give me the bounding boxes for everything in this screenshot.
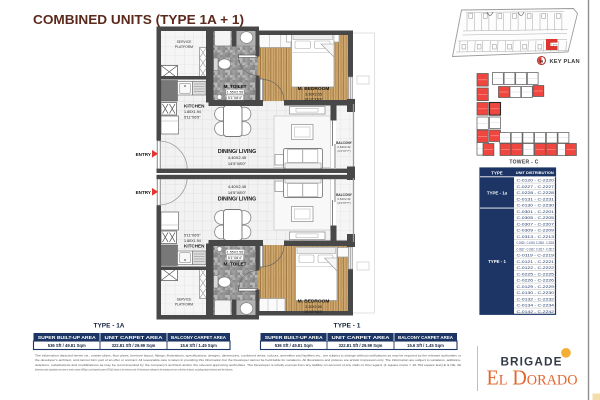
- svg-text:C-0226 - C-2226: C-0226 - C-2226: [517, 279, 555, 283]
- svg-text:536 Sft / 49.81 Sqm: 536 Sft / 49.81 Sqm: [48, 343, 86, 348]
- svg-text:1.55X2.55: 1.55X2.55: [227, 251, 243, 255]
- svg-text:UNIT DISTRIBUTION: UNIT DISTRIBUTION: [516, 170, 554, 175]
- svg-text:PLATFORM: PLATFORM: [175, 45, 193, 49]
- svg-text:UNIT CARPET AREA: UNIT CARPET AREA: [332, 335, 390, 340]
- svg-text:TYPE - 1a: TYPE - 1a: [487, 190, 508, 195]
- svg-text:C-0315 - C-1915, C-2015 - C-22: C-0315 - C-1915, C-2015 - C-2215: [517, 241, 555, 245]
- svg-text:TYPE - 1: TYPE - 1: [334, 323, 361, 330]
- svg-text:M. BEDROOM: M. BEDROOM: [298, 299, 330, 305]
- svg-text:C-0120 - C-2220: C-0120 - C-2220: [517, 179, 555, 183]
- svg-text:C-0122 - C-2222: C-0122 - C-2222: [517, 266, 555, 270]
- svg-text:C-0227 - C-2227: C-0227 - C-2227: [517, 185, 555, 189]
- svg-text:5'11"X6'5": 5'11"X6'5": [184, 234, 201, 238]
- svg-text:N: N: [540, 58, 543, 63]
- svg-text:C-0142 - C-2242: C-0142 - C-2242: [517, 310, 555, 314]
- svg-text:TYPE - 1A: TYPE - 1A: [94, 323, 125, 330]
- svg-text:(2'1"X7'7"): (2'1"X7'7"): [337, 149, 350, 153]
- svg-text:C-0134 - C-2234: C-0134 - C-2234: [517, 304, 555, 308]
- svg-text:14'5"X8'0": 14'5"X8'0": [228, 161, 247, 166]
- svg-text:TOWER - C: TOWER - C: [509, 160, 538, 166]
- svg-text:1.80X1.94: 1.80X1.94: [184, 110, 201, 114]
- svg-text:PLATFORM: PLATFORM: [175, 303, 193, 307]
- svg-text:3.30X2.55: 3.30X2.55: [305, 305, 322, 309]
- svg-text:KEY PLAN: KEY PLAN: [550, 59, 580, 65]
- svg-text:C-0309 - C-2209: C-0309 - C-2209: [517, 229, 555, 233]
- svg-text:5'1"X8'4": 5'1"X8'4": [228, 96, 243, 100]
- svg-text:C-0130 - C-2230: C-0130 - C-2230: [517, 291, 555, 295]
- svg-text:the developer's architect, and: the developer's architect, and cannot fo…: [35, 358, 461, 362]
- svg-text:The information depicted herei: The information depicted herein viz., ma…: [35, 354, 461, 358]
- svg-text:M. TOILET: M. TOILET: [223, 262, 246, 267]
- svg-text:DINING/ LIVING: DINING/ LIVING: [218, 197, 256, 203]
- svg-text:15.6 Sft / 1.45 Sqm: 15.6 Sft / 1.45 Sqm: [407, 343, 444, 348]
- svg-text:C-0130 - C-2230: C-0130 - C-2230: [517, 204, 555, 208]
- svg-text:15.6 Sft / 1.45 Sqm: 15.6 Sft / 1.45 Sqm: [180, 343, 217, 348]
- svg-text:(2'1"X7'7"): (2'1"X7'7"): [337, 201, 350, 205]
- svg-text:ENTRY: ENTRY: [136, 152, 151, 157]
- svg-text:C-0129 - C-2229: C-0129 - C-2229: [517, 285, 555, 289]
- svg-text:SUPER BUILT-UP AREA: SUPER BUILT-UP AREA: [38, 335, 96, 340]
- svg-text:TYPE - 1: TYPE - 1: [488, 259, 506, 264]
- svg-text:1.80X1.94: 1.80X1.94: [184, 239, 201, 243]
- svg-text:El Dorado: El Dorado: [487, 366, 578, 390]
- svg-text:SERVICE: SERVICE: [177, 40, 193, 44]
- svg-text:BALCONY CARPET AREA: BALCONY CARPET AREA: [398, 335, 453, 340]
- svg-text:3.30X2.55: 3.30X2.55: [305, 93, 322, 97]
- svg-text:dimensions and calculations ar: dimensions and calculations are done in …: [35, 368, 233, 372]
- svg-text:1.55X2.55: 1.55X2.55: [227, 91, 243, 95]
- svg-text:4.40X2.45: 4.40X2.45: [228, 155, 247, 160]
- svg-text:TYPE: TYPE: [491, 170, 503, 175]
- svg-text:C-0305 - C-2205: C-0305 - C-2205: [517, 216, 555, 220]
- svg-text:KITCHEN: KITCHEN: [184, 244, 205, 249]
- svg-text:C-0225 - C-2225: C-0225 - C-2225: [517, 272, 555, 276]
- svg-text:C-0301 - C-2201: C-0301 - C-2201: [517, 210, 555, 214]
- svg-text:322.81 Sft / 29.99 Sqm: 322.81 Sft / 29.99 Sqm: [112, 343, 156, 348]
- svg-text:C-0313 - C-2213: C-0313 - C-2213: [517, 235, 555, 239]
- svg-text:M. TOILET: M. TOILET: [223, 84, 246, 89]
- svg-text:5'11"X6'5": 5'11"X6'5": [184, 116, 201, 120]
- svg-text:10'10"X8'4": 10'10"X8'4": [304, 310, 323, 314]
- svg-text:C-0121 - C-2221: C-0121 - C-2221: [517, 260, 555, 264]
- svg-text:C-0131 - C-2231: C-0131 - C-2231: [517, 197, 555, 201]
- svg-text:M. BEDROOM: M. BEDROOM: [298, 86, 330, 92]
- svg-text:322.81 Sft / 29.99 Sqm: 322.81 Sft / 29.99 Sqm: [339, 343, 383, 348]
- svg-text:deletions, substitutions and m: deletions, substitutions and modificatio…: [35, 363, 461, 367]
- svg-text:SUPER BUILT-UP AREA: SUPER BUILT-UP AREA: [265, 335, 323, 340]
- svg-text:C-0132 - C-2232: C-0132 - C-2232: [517, 297, 555, 301]
- svg-text:C-0317 - C-1917, C-2117 - C-22: C-0317 - C-1917, C-2117 - C-2217: [517, 247, 555, 251]
- svg-text:SERVICE: SERVICE: [177, 298, 193, 302]
- svg-text:4.40X2.45: 4.40X2.45: [228, 184, 247, 189]
- svg-text:C-0119 - C-2219: C-0119 - C-2219: [517, 254, 555, 258]
- svg-text:ENTRY: ENTRY: [136, 190, 151, 195]
- svg-text:KITCHEN: KITCHEN: [184, 104, 205, 109]
- svg-text:C-0228 - C-2228: C-0228 - C-2228: [517, 191, 555, 195]
- svg-text:5'1"X8'4": 5'1"X8'4": [228, 256, 243, 260]
- svg-text:UNIT CARPET AREA: UNIT CARPET AREA: [105, 335, 163, 340]
- svg-text:BALCONY CARPET AREA: BALCONY CARPET AREA: [171, 335, 226, 340]
- svg-text:536 Sft / 49.81 Sqm: 536 Sft / 49.81 Sqm: [275, 343, 313, 348]
- svg-text:14'5"X8'0": 14'5"X8'0": [228, 190, 247, 195]
- svg-text:10'10"X8'4": 10'10"X8'4": [304, 98, 323, 102]
- svg-text:C-0307 - C-2207: C-0307 - C-2207: [517, 222, 555, 226]
- svg-text:COMBINED UNITS (TYPE 1A + 1): COMBINED UNITS (TYPE 1A + 1): [33, 12, 244, 27]
